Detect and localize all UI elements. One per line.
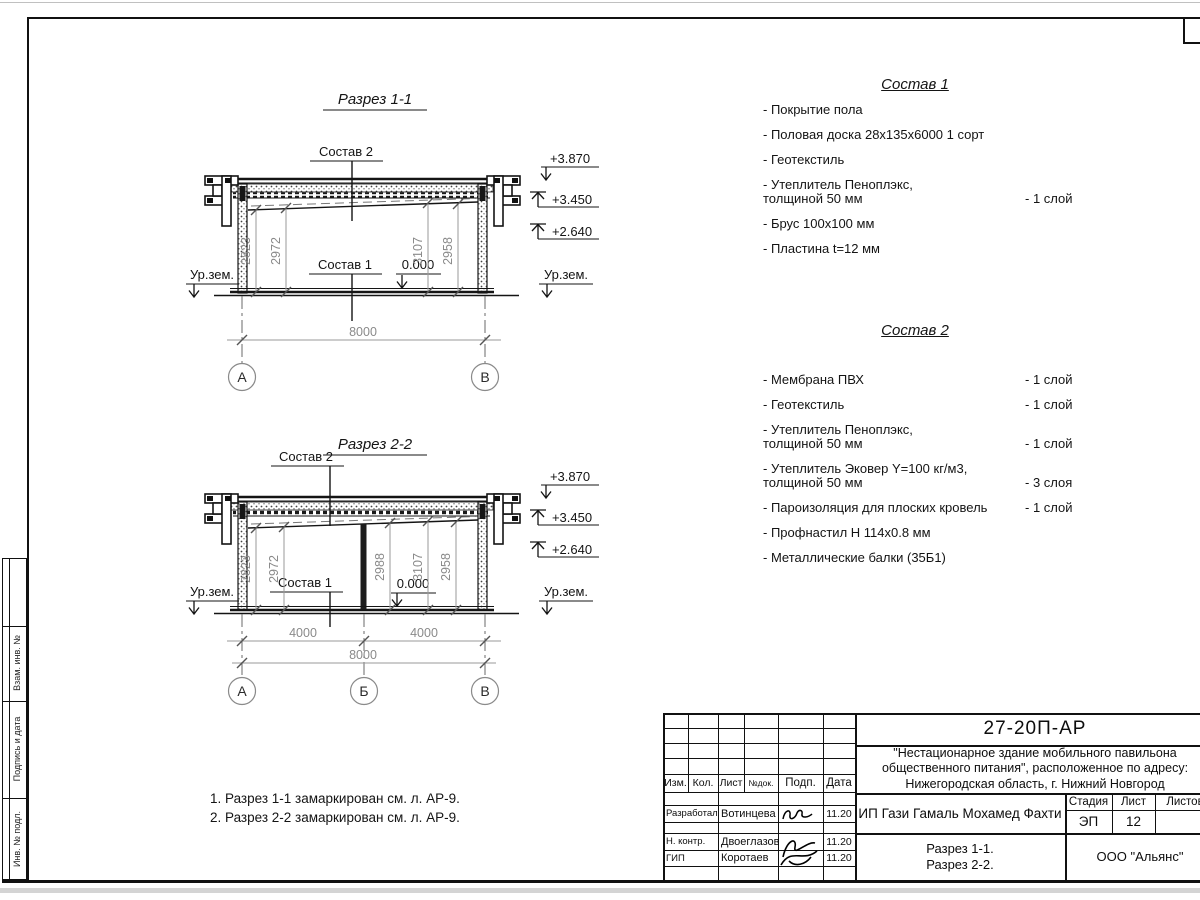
list-item: - Брус 100х100 мм	[755, 217, 1175, 231]
tb-date: 11.20	[823, 833, 855, 850]
section-2-roof	[230, 497, 493, 528]
item-text: - Утеплитель Пеноплэкс,	[763, 423, 1025, 437]
item-qty: - 1 слой	[1025, 192, 1073, 206]
item-qty: - 1 слой	[1025, 373, 1073, 387]
ground-level-label: Ур.зем.	[544, 584, 588, 599]
item-qty: - 1 слой	[1025, 398, 1073, 412]
tb-grid-line	[663, 743, 855, 744]
tb-drawing-name-line: Разрез 2-2.	[926, 857, 993, 873]
dim-label: 3107	[411, 553, 425, 581]
elevation-label: +3.450	[552, 510, 592, 525]
elevation-label: +3.870	[550, 469, 590, 484]
list-item: - Профнастил Н 114х0.8 мм	[755, 526, 1175, 540]
dim-label: 2972	[267, 555, 281, 583]
tb-col-kol: Кол.	[688, 774, 718, 792]
section-2: Разрез 2-2 Состав 2	[186, 436, 599, 705]
section-1-roof	[230, 179, 493, 210]
item-text: - Пластина t=12 мм	[763, 242, 1025, 256]
tb-grid-line	[663, 880, 1200, 882]
tb-doc-number: 27-20П-АР	[855, 713, 1200, 745]
dim-label: 8000	[349, 648, 377, 662]
level-mark-icon	[189, 284, 199, 297]
section-1-callouts: Состав 2 Состав 1 0.000	[309, 144, 441, 321]
dim-label: 2988	[373, 553, 387, 581]
sostav2-list: Состав 2 - Мембрана ПВХ - 1 слой - Геоте…	[755, 322, 1175, 576]
section-2-callouts: Состав 2 Состав 1 0.000	[270, 449, 436, 627]
list-item: - Металлические балки (35Б1)	[755, 551, 1175, 565]
list-item: - Покрытие пола	[755, 103, 1175, 117]
tb-sheets-label: Листов	[1155, 793, 1200, 810]
dim-label: 4000	[410, 626, 438, 640]
dim-label: 4000	[289, 626, 317, 640]
list-item: - Мембрана ПВХ - 1 слой	[755, 373, 1175, 387]
item-text: - Геотекстиль	[763, 153, 1025, 167]
section-1-floor	[214, 289, 519, 296]
grid-axis-bubble: В	[480, 369, 489, 385]
tb-name: Вотинцева	[719, 805, 777, 822]
dim-label: 2958	[441, 237, 455, 265]
list-item: - Геотекстиль	[755, 153, 1175, 167]
level-mark-icon	[397, 275, 407, 288]
tb-stage-value: ЭП	[1065, 810, 1112, 833]
level-mark-icon	[189, 601, 199, 614]
drawing-sheet: { "side_stamp": { "labels": ["Взам. инв.…	[0, 0, 1200, 900]
ground-level-label: Ур.зем.	[190, 267, 234, 282]
item-text: - Геотекстиль	[763, 398, 1025, 412]
tb-role: ГИП	[664, 850, 717, 866]
eave-bracket-left	[205, 176, 238, 226]
tb-role: Разработал	[664, 805, 717, 822]
tb-grid-line	[663, 758, 855, 759]
tb-col-izm: Изм.	[663, 774, 688, 792]
tb-grid-line	[663, 792, 855, 793]
list-item: - Утеплитель Пеноплэкс, толщиной 50 мм -…	[755, 423, 1175, 451]
tb-name: Двоеглазов	[719, 833, 777, 850]
tb-drawing-name-line: Разрез 1-1.	[926, 841, 993, 857]
item-text: - Брус 100х100 мм	[763, 217, 1025, 231]
dim-label: 8000	[349, 325, 377, 339]
grid-axis-bubble: В	[480, 683, 489, 699]
section-2-title: Разрез 2-2	[338, 436, 413, 453]
level-mark-icon	[392, 593, 402, 606]
tb-role: Н. контр.	[664, 833, 717, 850]
item-text: - Половая доска 28х135х6000 1 сорт	[763, 128, 1025, 142]
tb-stage-label: Стадия	[1065, 793, 1112, 810]
elevation-label: +3.870	[550, 151, 590, 166]
grid-axis-bubble: А	[237, 683, 247, 699]
level-mark-icon	[530, 510, 546, 525]
section-1-bottom-dim: 8000 А В	[227, 296, 501, 391]
level-mark-icon	[542, 284, 552, 297]
item-text: - Металлические балки (35Б1)	[763, 551, 1025, 565]
item-text: толщиной 50 мм	[763, 192, 1025, 206]
list-item: - Пластина t=12 мм	[755, 242, 1175, 256]
item-text: - Профнастил Н 114х0.8 мм	[763, 526, 1025, 540]
note-line: 1. Разрез 1-1 замаркирован см. л. АР-9.	[210, 789, 460, 808]
sostav1-list-title: Состав 1	[755, 76, 1075, 93]
level-mark-icon	[530, 542, 546, 557]
tb-col-ndok: №док.	[744, 774, 778, 792]
tb-col-podp: Подп.	[778, 774, 823, 792]
list-item: - Половая доска 28х135х6000 1 сорт	[755, 128, 1175, 142]
notes: 1. Разрез 1-1 замаркирован см. л. АР-9. …	[210, 789, 460, 827]
tb-grid-line	[663, 866, 855, 867]
tb-sheet-value: 12	[1112, 810, 1155, 833]
tb-sheet-label: Лист	[1112, 793, 1155, 810]
dim-label: 2958	[439, 553, 453, 581]
eave-bracket-left	[205, 494, 238, 544]
sostav1-callout: Состав 1	[278, 575, 332, 590]
tb-project-title: "Нестационарное здание мобильного павиль…	[859, 746, 1200, 792]
item-text: толщиной 50 мм	[763, 476, 1025, 490]
sostav2-callout: Состав 2	[319, 144, 373, 159]
tb-date: 11.20	[823, 805, 855, 822]
note-line: 2. Разрез 2-2 замаркирован см. л. АР-9.	[210, 808, 460, 827]
list-item: - Утеплитель Эковер Y=100 кг/м3, толщино…	[755, 462, 1175, 490]
section-1-title: Разрез 1-1	[338, 91, 412, 108]
section-2-bottom-dims: 4000 4000 8000 А Б В	[227, 614, 501, 705]
item-text: - Утеплитель Пеноплэкс,	[763, 178, 1025, 192]
tb-grid-line	[663, 728, 855, 729]
section-2-vertical-dims: 2823 2972 2988 3107 2958	[239, 516, 461, 615]
dim-label: 2823	[239, 555, 253, 583]
list-item: - Пароизоляция для плоских кровель - 1 с…	[755, 501, 1175, 515]
section-1-vertical-dims: 2823 2972 3107 2958	[239, 198, 463, 297]
item-text: - Утеплитель Эковер Y=100 кг/м3,	[763, 462, 1025, 476]
item-text: - Мембрана ПВХ	[763, 373, 1025, 387]
tb-grid-line	[663, 822, 855, 823]
tb-client: ИП Гази Гамаль Мохамед Фахти	[855, 793, 1065, 833]
elevation-label: +2.640	[552, 542, 592, 557]
level-mark-icon	[530, 192, 546, 207]
section-2-elevations: +3.870 +3.450 +2.640	[530, 469, 599, 557]
eave-bracket-right	[487, 494, 520, 544]
grid-axis-bubble: А	[237, 369, 247, 385]
tb-date: 11.20	[823, 850, 855, 866]
item-text: толщиной 50 мм	[763, 437, 1025, 451]
level-mark-icon	[541, 485, 551, 498]
sostav2-callout: Состав 2	[279, 449, 333, 464]
section-1: Разрез 1-1 Состав 2	[186, 91, 599, 391]
sostav1-list: Состав 1 - Покрытие пола - Половая доска…	[755, 76, 1175, 267]
eave-bracket-right	[487, 176, 520, 226]
list-item: - Утеплитель Пеноплэкс, толщиной 50 мм -…	[755, 178, 1175, 206]
signature	[777, 831, 823, 869]
tb-sheets-value	[1155, 810, 1200, 833]
tb-name: Коротаев	[719, 850, 777, 866]
item-qty: - 1 слой	[1025, 437, 1073, 451]
tb-drawing-name: Разрез 1-1. Разрез 2-2.	[855, 833, 1065, 880]
section-1-elevations: +3.870 +3.450 +2.640	[530, 151, 599, 239]
elevation-label: +2.640	[552, 224, 592, 239]
grid-axis-bubble: Б	[359, 683, 368, 699]
item-text: - Пароизоляция для плоских кровель	[763, 501, 1025, 515]
tb-col-list: Лист	[718, 774, 744, 792]
ground-level-label: Ур.зем.	[544, 267, 588, 282]
level-mark-icon	[542, 601, 552, 614]
ground-level-label: Ур.зем.	[190, 584, 234, 599]
list-item: - Геотекстиль - 1 слой	[755, 398, 1175, 412]
sostav2-list-title: Состав 2	[755, 322, 1075, 339]
title-block: Изм. Кол. Лист №док. Подп. Дата Разработ…	[663, 713, 1200, 882]
item-text: - Покрытие пола	[763, 103, 1025, 117]
level-mark-icon	[541, 167, 551, 180]
tb-company: ООО "Альянс"	[1065, 833, 1200, 880]
elevation-label: +3.450	[552, 192, 592, 207]
item-qty: - 3 слоя	[1025, 476, 1072, 490]
level-mark-icon	[530, 224, 546, 239]
signature	[779, 806, 821, 822]
tb-col-data: Дата	[823, 774, 855, 792]
sostav1-callout: Состав 1	[318, 257, 372, 272]
dim-label: 3107	[411, 237, 425, 265]
dim-label: 2972	[269, 237, 283, 265]
item-qty: - 1 слой	[1025, 501, 1073, 515]
dim-label: 2823	[239, 237, 253, 265]
